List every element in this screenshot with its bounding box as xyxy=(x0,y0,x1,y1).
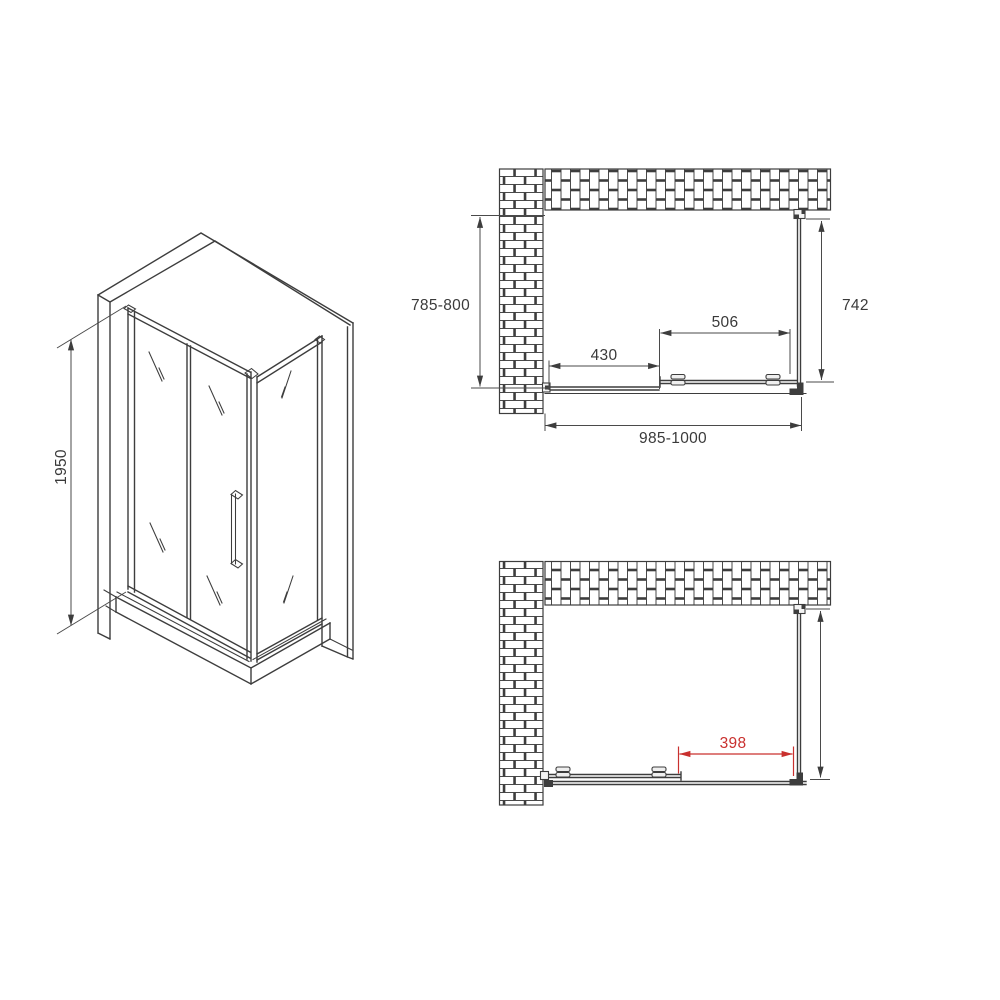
fixed-glass-panel-plan xyxy=(545,387,659,390)
front-top-rail xyxy=(128,308,250,378)
track-and-fixed-panel xyxy=(545,782,806,785)
sparkle-door-lower xyxy=(207,576,222,605)
sparkle-door-upper xyxy=(209,386,224,415)
front-bottom-rail xyxy=(128,586,250,658)
side-glass-panel-plan xyxy=(798,219,801,386)
dim-label-door-width: 506 xyxy=(712,314,739,331)
back-wall-brick-band xyxy=(545,169,831,210)
sparkle-fixed-lower xyxy=(150,523,165,552)
dim-label-side-depth: 742 xyxy=(842,297,869,314)
dim-label-width-range: 985-1000 xyxy=(639,430,707,447)
corner-post xyxy=(247,372,257,662)
roller xyxy=(671,375,685,380)
dim-side-depth: 742 xyxy=(806,219,869,382)
roller xyxy=(671,381,685,386)
front-left-post xyxy=(128,308,135,592)
dim-fixed-width: 430 xyxy=(549,347,659,390)
handle-bar xyxy=(232,494,236,564)
dim-label-height: 1950 xyxy=(53,449,70,485)
sparkle-fixed-upper xyxy=(149,352,164,381)
corner-bracket xyxy=(790,773,804,786)
dim-width-range: 985-1000 xyxy=(545,397,802,447)
left-wall-brick-column xyxy=(500,562,544,806)
door-handle xyxy=(231,491,243,569)
wall-inner-top-edge xyxy=(110,241,350,325)
side-glass-panel-plan xyxy=(798,613,801,777)
wall-outer-top-edge xyxy=(98,233,353,323)
back-wall-brick-band xyxy=(545,562,831,606)
dim-label-door-opening: 398 xyxy=(720,735,747,752)
dim-door-opening: 398 xyxy=(679,735,794,776)
iso-enclosure-frame xyxy=(124,305,325,662)
sparkle-side-upper xyxy=(282,371,292,398)
door-rollers xyxy=(556,767,666,777)
corner-bracket xyxy=(790,383,804,396)
technical-drawing: 1950 xyxy=(0,0,1000,1000)
left-wall-brick-column xyxy=(500,169,544,414)
roller xyxy=(766,381,780,386)
iso-height-dimension: 1950 xyxy=(53,306,126,634)
iso-walls xyxy=(98,233,353,659)
handle-top-mount xyxy=(231,491,243,500)
top-plan-view: 785-800 742 506 430 985-1000 xyxy=(411,169,869,447)
dim-label-fixed-width: 430 xyxy=(591,347,618,364)
dim-side-unlabeled xyxy=(806,609,830,780)
glass-sparkles xyxy=(149,352,293,605)
roller xyxy=(766,375,780,380)
door-leading-edge xyxy=(187,344,191,620)
left-wall-end-face xyxy=(98,295,110,639)
shower-tray xyxy=(104,590,352,684)
dim-label-depth-range: 785-800 xyxy=(411,297,470,314)
roller xyxy=(652,773,666,778)
roller xyxy=(652,767,666,772)
roller xyxy=(556,773,570,778)
sparkle-side-lower xyxy=(284,576,294,603)
wall-mount-bracket-top xyxy=(794,605,805,614)
roller xyxy=(556,767,570,772)
bottom-plan-view: 398 xyxy=(500,562,831,806)
wall-mount-bracket-top xyxy=(794,210,805,219)
drawing-canvas: 1950 xyxy=(0,0,1000,1000)
right-wall-end-face xyxy=(322,323,353,659)
isometric-view: 1950 xyxy=(53,233,353,684)
handle-bottom-mount xyxy=(231,560,243,569)
